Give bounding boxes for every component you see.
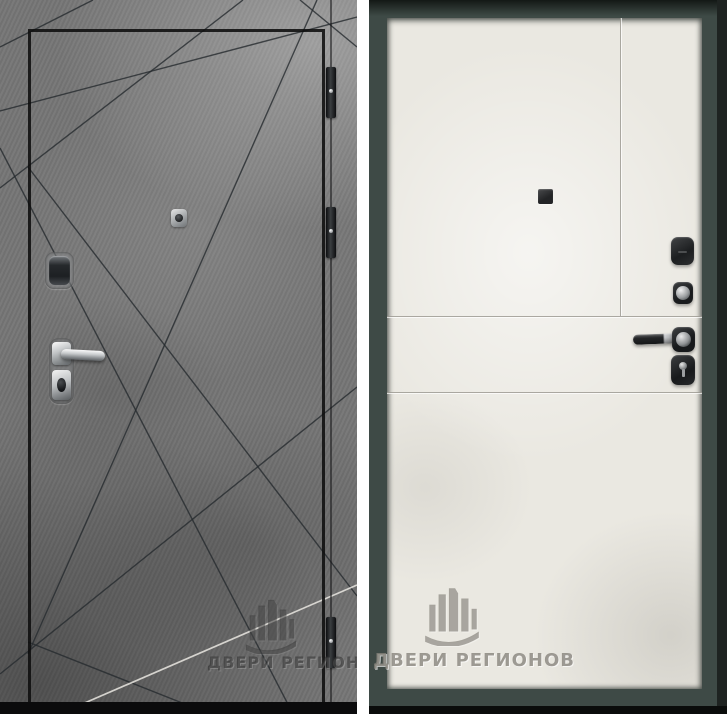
hinge-icon <box>326 67 336 118</box>
door-interior-photo: ДВЕРИ РЕГИОНОВ <box>369 0 727 714</box>
hinge-icon <box>326 617 336 668</box>
handle-rosette <box>672 327 695 352</box>
cylinder-lock-icon <box>52 370 71 400</box>
peephole-icon <box>538 189 553 204</box>
threshold-shadow <box>369 706 727 714</box>
threshold-shadow <box>0 702 357 714</box>
panel-horizontal-groove <box>387 316 702 317</box>
peephole-icon <box>171 209 187 227</box>
panel-vertical-groove <box>620 18 621 316</box>
door-product-image: ДВЕРИ РЕГИОНОВ ДВЕРИ РЕГИОНОВ <box>0 0 727 714</box>
frame-top-shadow <box>369 0 727 16</box>
door-exterior-photo: ДВЕРИ РЕГИОНОВ <box>0 0 357 714</box>
lock-cover-icon <box>45 252 74 289</box>
turn-knob-icon <box>673 282 693 304</box>
hinge-icon <box>326 207 336 258</box>
panel-horizontal-groove <box>387 392 702 393</box>
frame-right-edge <box>717 0 727 714</box>
interior-panel <box>387 18 702 689</box>
lock-cover-icon <box>671 237 694 265</box>
lock-cover-face <box>49 256 70 285</box>
keyhole-escutcheon-icon <box>671 355 695 385</box>
door-handle-icon <box>633 333 677 345</box>
